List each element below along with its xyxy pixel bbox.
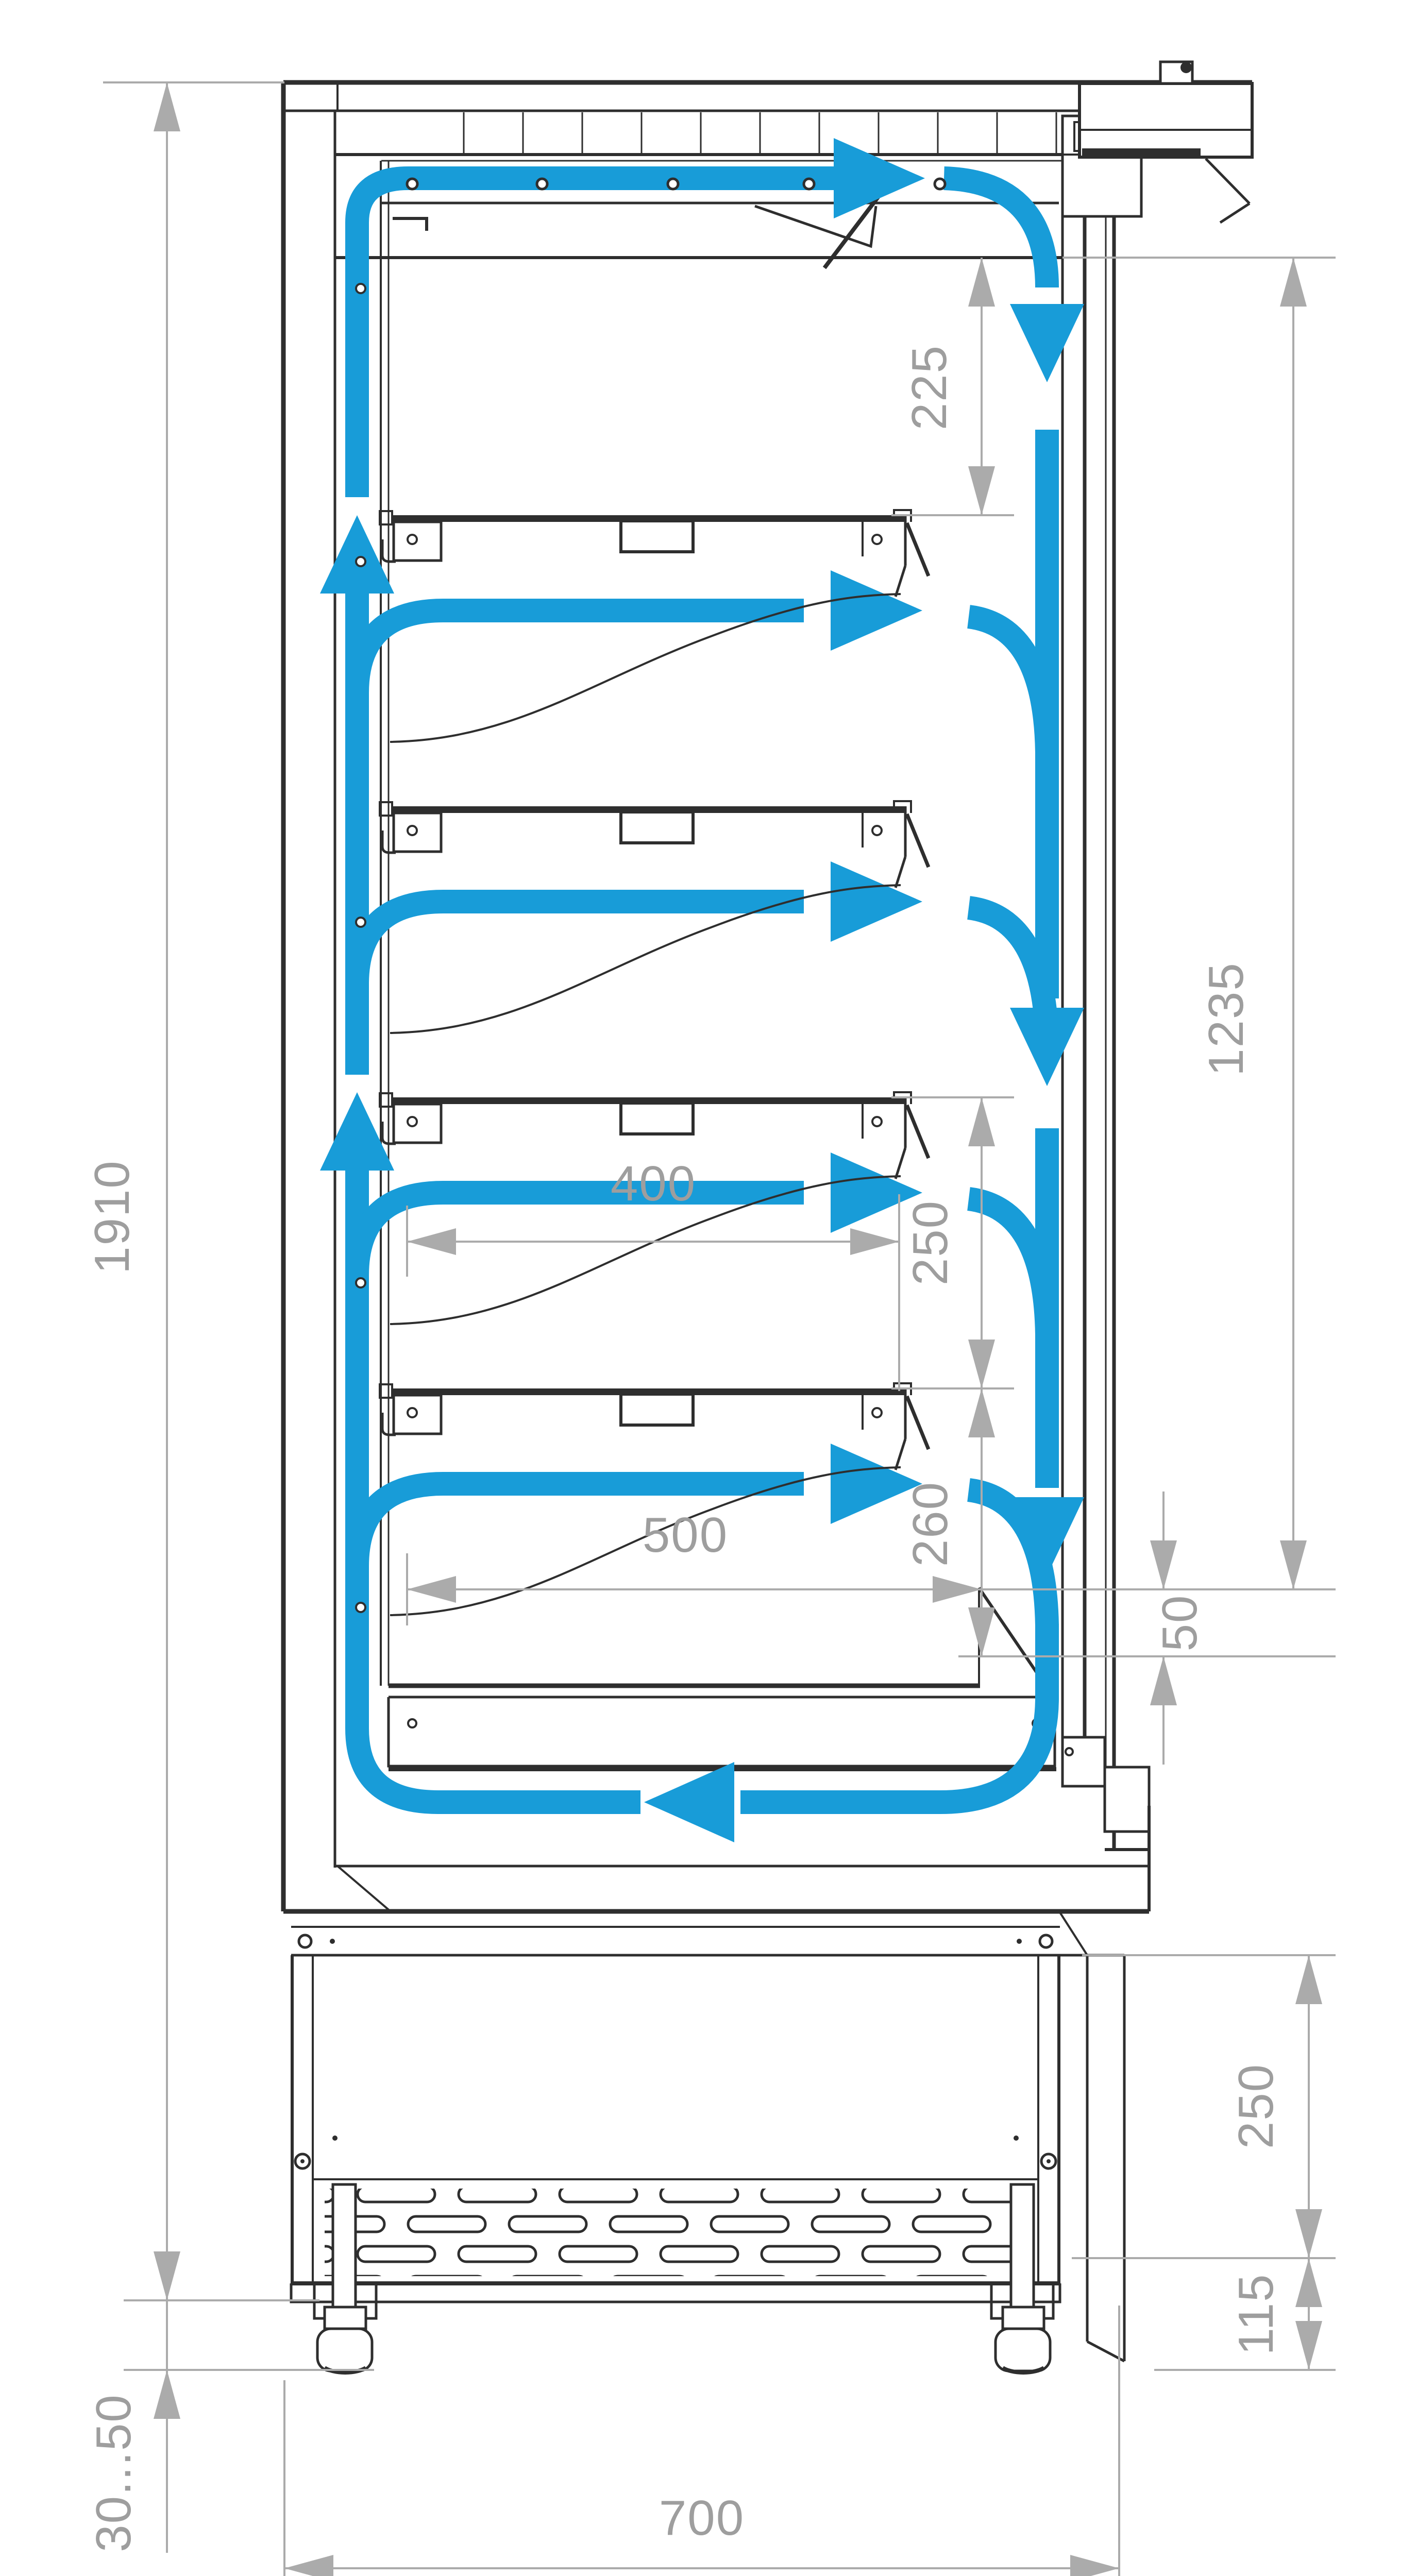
dimension-top-gap: 225 <box>891 258 1014 515</box>
dimension-label-overall-height: 1910 <box>85 1160 140 1274</box>
dimension-label-shelf-depth: 400 <box>611 1156 696 1211</box>
dimension-label-base-height: 250 <box>1228 2063 1284 2149</box>
canopy-ribs <box>464 112 1056 154</box>
dimension-grille-height: 115 <box>1154 2258 1336 2370</box>
dimension-label-overall-depth: 700 <box>659 2490 745 2546</box>
dimension-label-foot-adjustment: 30...50 <box>86 2394 141 2552</box>
page: 1910 30...50 700 225 <box>0 0 1417 2576</box>
cabinet-structure <box>283 62 1252 2372</box>
dimension-outlet-height: 50 <box>1150 1492 1207 1765</box>
dimension-overall-depth: 700 <box>284 2306 1119 2576</box>
dimension-bottom-gap: 260 <box>903 1388 1336 1656</box>
door-bottom-hinge <box>1062 1737 1149 1911</box>
ventilation-grille <box>325 2189 1025 2276</box>
dimension-base-height: 250 <box>1072 1955 1336 2258</box>
dimension-label-air-curtain-height: 1235 <box>1199 962 1254 1076</box>
refrigerated-cabinet-cross-section-diagram: 1910 30...50 700 225 <box>0 0 1417 2576</box>
dimension-shelf-spacing: 250 <box>891 1097 1014 1388</box>
machine-base <box>291 1912 1124 2361</box>
arrow-branch-2 <box>357 861 1047 1043</box>
dimension-label-shelf-spacing: 250 <box>903 1200 958 1285</box>
dimension-air-curtain-height: 1235 <box>1062 258 1336 1589</box>
dimension-label-grille-height: 115 <box>1228 2273 1284 2355</box>
arrow-branch-1 <box>357 570 1047 752</box>
dimension-label-bottom-gap: 260 <box>903 1481 958 1567</box>
bottom-basin <box>283 1588 1149 1911</box>
dimension-label-outlet-height: 50 <box>1152 1595 1207 1652</box>
dimension-label-top-gap: 225 <box>902 345 957 430</box>
dimension-label-bottom-shelf-depth: 500 <box>643 1507 728 1563</box>
dimension-overall-height: 1910 <box>85 82 284 2300</box>
arrow-return <box>644 1762 734 1842</box>
arrow-curtain-1 <box>1010 304 1084 382</box>
door-top-frame <box>1062 62 1252 223</box>
